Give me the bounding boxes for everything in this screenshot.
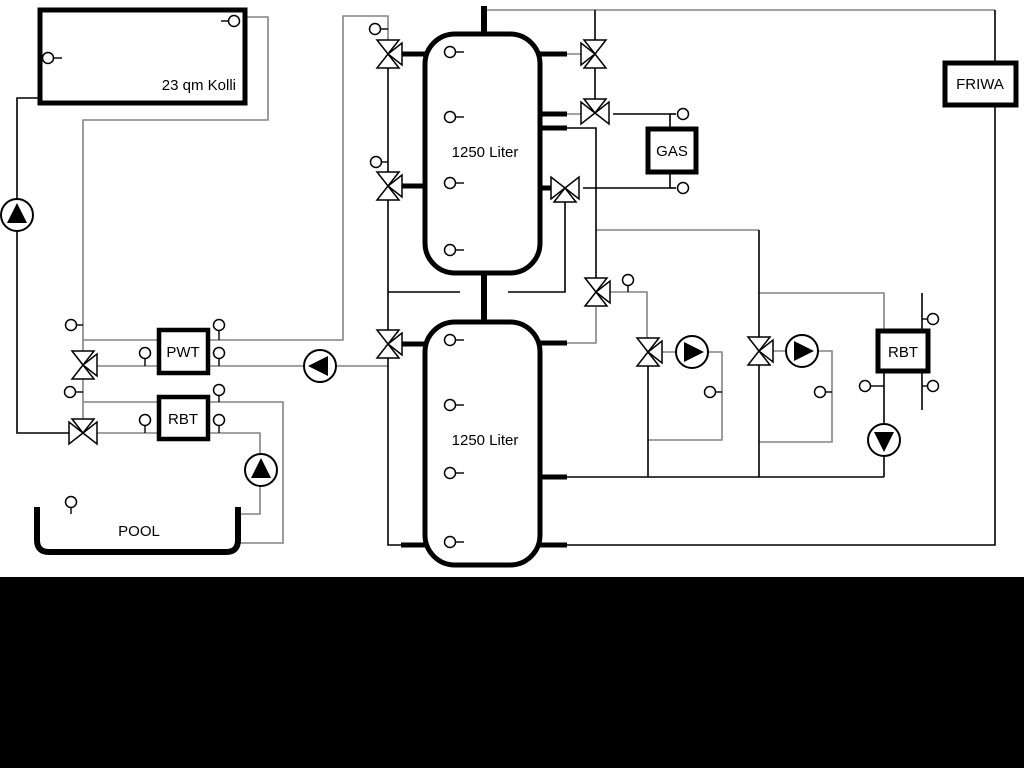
temp-sensor: [922, 314, 939, 325]
pipe-gas-top: [613, 114, 670, 127]
valve-tank1-mid-left: [377, 172, 402, 200]
rbt-right-label: RBT: [888, 344, 918, 361]
schematic-canvas: 23 qm Kolli 1250 Liter 1250 Liter GAS FR…: [0, 0, 1024, 768]
temp-sensor: [65, 387, 84, 398]
valve-pump-group2: [748, 337, 773, 365]
temp-sensor: [678, 183, 689, 194]
temp-sensor: [214, 348, 225, 367]
pump-pool: [245, 454, 277, 486]
pump-group2: [786, 335, 818, 367]
temp-sensor: [678, 109, 689, 120]
pump-solar: [1, 199, 33, 231]
valve-gas-mixer: [581, 99, 609, 124]
pool-label: POOL: [118, 523, 160, 540]
temp-sensor: [214, 320, 225, 341]
temp-sensor: [214, 385, 225, 403]
bottom-black-bar: [0, 577, 1024, 768]
valve-solar-pwt: [72, 351, 97, 379]
tank-bottom-label: 1250 Liter: [452, 432, 519, 449]
pipe-riser-596: [567, 128, 596, 278]
temp-sensor: [66, 497, 77, 515]
temp-sensor: [623, 275, 634, 293]
pwt-label: PWT: [166, 344, 199, 361]
pump-group1: [676, 336, 708, 368]
valve-solar-pool: [69, 419, 97, 444]
pipe-branch-293: [759, 293, 884, 329]
tank-top-label: 1250 Liter: [452, 144, 519, 161]
valve-pump-group1: [637, 338, 662, 366]
collector-label: 23 qm Kolli: [162, 77, 236, 94]
temp-sensor: [370, 24, 389, 35]
valve-heating-supply: [585, 278, 610, 306]
gas-label: GAS: [656, 143, 688, 160]
temp-sensor: [140, 415, 151, 434]
friwa-label: FRIWA: [956, 76, 1004, 93]
temp-sensor: [860, 381, 885, 392]
pump-pwt: [304, 350, 336, 382]
temp-sensor: [705, 387, 723, 398]
valve-tank1-top-right: [581, 40, 606, 68]
valve-tank2-left: [377, 330, 402, 358]
pipe-tank2-riser: [567, 307, 596, 343]
temp-sensor: [214, 415, 225, 434]
hydraulic-schematic: 23 qm Kolli 1250 Liter 1250 Liter GAS FR…: [0, 0, 1024, 768]
temp-sensor: [140, 348, 151, 367]
valve-gas-return: [551, 177, 579, 202]
temp-sensor: [815, 387, 833, 398]
temp-sensor: [371, 157, 389, 168]
valve-tank1-top-left: [377, 40, 402, 68]
pipe-rbt-left-bottom: [97, 433, 260, 514]
pump-rbt-right: [868, 424, 900, 456]
temp-sensor: [66, 320, 84, 331]
pipe-solar-flow: [17, 98, 69, 433]
rbt-left-label: RBT: [168, 411, 198, 428]
temp-sensor: [922, 381, 939, 392]
